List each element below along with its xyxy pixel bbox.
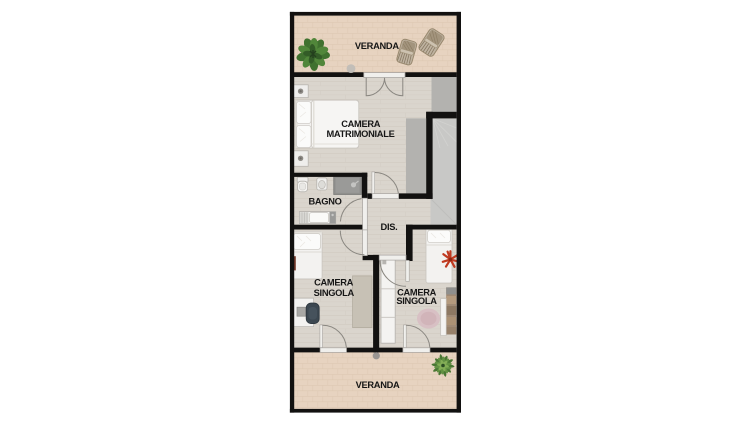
svg-text:DIS.: DIS.	[381, 222, 398, 232]
svg-text:CAMERA: CAMERA	[341, 119, 381, 129]
svg-text:VERANDA: VERANDA	[356, 380, 400, 390]
svg-text:CAMERA: CAMERA	[314, 278, 354, 288]
svg-text:SINGOLA: SINGOLA	[396, 296, 437, 306]
svg-text:VERANDA: VERANDA	[355, 41, 399, 51]
svg-text:MATRIMONIALE: MATRIMONIALE	[326, 129, 394, 139]
svg-text:SINGOLA: SINGOLA	[314, 288, 355, 298]
svg-text:BAGNO: BAGNO	[308, 196, 341, 206]
